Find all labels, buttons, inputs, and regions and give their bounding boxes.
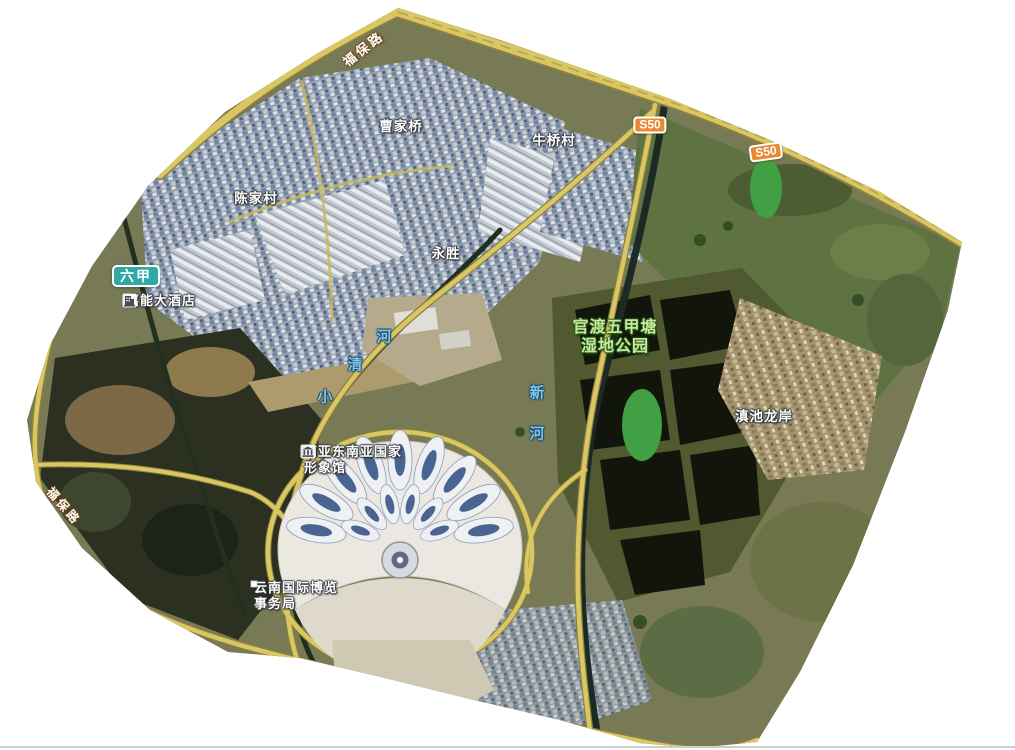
place-label-yongsheng: 永胜 xyxy=(432,242,461,262)
poi-yunnan-expo-bureau: 云南国际博览 事务局 xyxy=(250,580,338,612)
map-viewport[interactable]: 福保路 福保路 S50 S50 六甲 曹家桥 牛桥村 陈家村 永胜 滇池龙岸 官… xyxy=(0,0,1015,750)
river-label-xinhe-char-xin: 新 xyxy=(529,382,544,403)
poi-south-asia-pavilion-line2: 形象馆 xyxy=(304,460,402,476)
river-label-xinhe-char-he: 河 xyxy=(529,423,544,444)
poi-yunnan-expo-bureau-line1: 云南国际博览 xyxy=(254,580,338,596)
place-label-caojiaqiao: 曹家桥 xyxy=(379,115,423,135)
poi-south-asia-pavilion-line1: 南亚东南亚国家 xyxy=(304,444,402,460)
river-label-xiaoqinghe-char-qing: 清 xyxy=(347,354,362,375)
area-badge-liujia: 六甲 xyxy=(112,265,160,287)
river-label-xiaoqinghe-char-he: 河 xyxy=(376,326,391,347)
poi-yunnan-expo-bureau-line2: 事务局 xyxy=(254,596,338,612)
poi-south-asia-pavilion: 南亚东南亚国家 形象馆 xyxy=(300,444,402,476)
place-label-dianchi-longan: 滇池龙岸 xyxy=(735,405,793,425)
highway-shield-s50-1: S50 xyxy=(633,117,666,134)
terrain-base xyxy=(0,0,1015,750)
poi-south-asia-pavilion-label: 南亚东南亚国家 形象馆 xyxy=(304,444,402,476)
poi-yunnan-expo-bureau-label: 云南国际博览 事务局 xyxy=(254,580,338,612)
place-label-niuqiaocun: 牛桥村 xyxy=(532,129,576,149)
place-label-chenjiacun: 陈家村 xyxy=(234,187,278,207)
satellite-map-canvas[interactable] xyxy=(0,0,1015,750)
park-label-wujiatang-wetland: 官渡五甲塘 湿地公园 xyxy=(572,318,657,356)
river-label-xiaoqinghe-char-xiao: 小 xyxy=(317,386,332,407)
park-label-line2: 湿地公园 xyxy=(572,337,657,356)
park-label-line1: 官渡五甲塘 xyxy=(572,318,657,337)
poi-jianeng-hotel: 嘉能大酒店 xyxy=(122,293,196,309)
page-bottom-divider xyxy=(0,746,1015,748)
